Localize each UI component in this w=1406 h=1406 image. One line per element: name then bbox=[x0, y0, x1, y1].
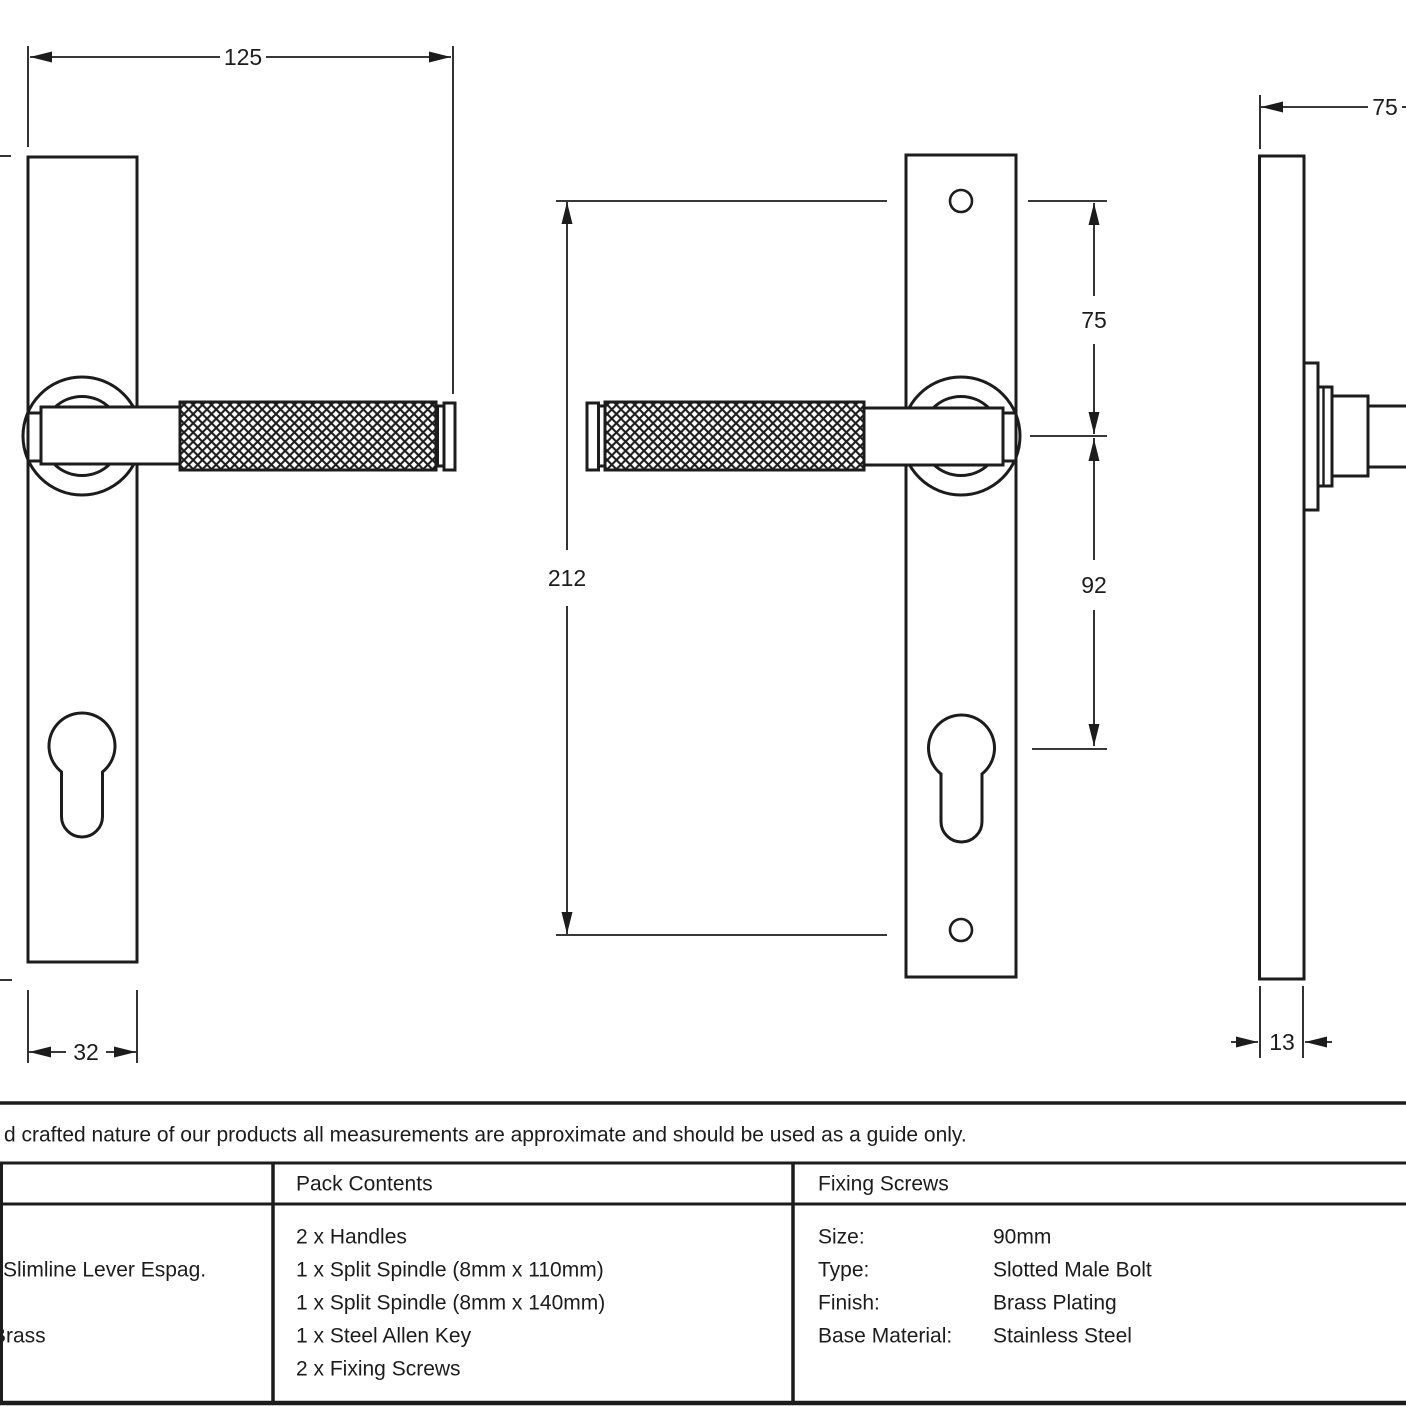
fixing-row-label: Type: bbox=[818, 1259, 869, 1282]
side-backplate bbox=[1260, 156, 1305, 979]
middle-backplate bbox=[906, 155, 1016, 977]
pack-contents-header: Pack Contents bbox=[296, 1173, 433, 1196]
dim-label-13: 13 bbox=[1269, 1029, 1295, 1055]
arrow-32-left bbox=[29, 1047, 51, 1058]
middle-top-screw-hole bbox=[950, 190, 972, 212]
arrow-125-right bbox=[429, 52, 451, 63]
technical-drawing-svg: 125 32 212 75 92 75 13 d crafted nature … bbox=[0, 0, 1406, 1406]
side-view bbox=[1260, 156, 1406, 979]
dim-label-125: 125 bbox=[224, 44, 262, 70]
middle-lever-neck bbox=[864, 408, 1003, 465]
front-view bbox=[23, 157, 455, 962]
dim-label-32: 32 bbox=[73, 1039, 99, 1065]
fixing-row-label: Base Material: bbox=[818, 1325, 952, 1348]
arrow-75-up bbox=[1089, 203, 1100, 225]
fixing-row-label: Size: bbox=[818, 1226, 865, 1249]
front-backplate bbox=[28, 157, 137, 962]
dimension-lines bbox=[0, 46, 1406, 1063]
arrow-125-left bbox=[30, 52, 52, 63]
pack-item: 1 x Split Spindle (8mm x 140mm) bbox=[296, 1292, 605, 1315]
middle-bottom-screw-hole bbox=[950, 919, 972, 941]
fixing-row-value: Stainless Steel bbox=[993, 1325, 1132, 1348]
front-lever-neck bbox=[41, 407, 180, 464]
arrow-13-inward-right bbox=[1305, 1037, 1327, 1048]
pack-item: 2 x Handles bbox=[296, 1226, 407, 1249]
front-lever-end-cap bbox=[444, 403, 455, 470]
arrow-75side-left bbox=[1261, 102, 1283, 113]
middle-view bbox=[587, 155, 1020, 977]
pack-item: 1 x Split Spindle (8mm x 110mm) bbox=[296, 1259, 604, 1282]
middle-spindle-block bbox=[1003, 413, 1016, 461]
side-collar bbox=[1318, 387, 1332, 486]
pack-item: 1 x Steel Allen Key bbox=[296, 1325, 472, 1348]
dimension-labels: 125 32 212 75 92 75 13 bbox=[73, 44, 1398, 1065]
side-rose-profile bbox=[1304, 363, 1318, 510]
dim-label-212: 212 bbox=[548, 565, 586, 591]
info-table: d crafted nature of our products all mea… bbox=[0, 1103, 1406, 1403]
product-finish-text: Brass bbox=[0, 1325, 46, 1348]
middle-lever-end-cap bbox=[587, 403, 599, 470]
disclaimer-text: d crafted nature of our products all mea… bbox=[4, 1124, 967, 1147]
fixing-row-value: Slotted Male Bolt bbox=[993, 1259, 1152, 1282]
arrow-212-down bbox=[562, 912, 573, 934]
pack-item: 2 x Fixing Screws bbox=[296, 1358, 461, 1381]
dim-label-92: 92 bbox=[1081, 572, 1107, 598]
arrow-32-right bbox=[114, 1047, 136, 1058]
fixing-row-value: Brass Plating bbox=[993, 1292, 1117, 1315]
fixing-screws-header: Fixing Screws bbox=[818, 1173, 949, 1196]
arrow-75-down bbox=[1089, 412, 1100, 434]
product-name-text: Slimline Lever Espag. bbox=[3, 1259, 206, 1282]
front-spindle-block bbox=[28, 413, 41, 461]
side-lever-hub bbox=[1332, 396, 1368, 476]
arrow-92-up bbox=[1089, 439, 1100, 461]
dim-label-75-top: 75 bbox=[1081, 307, 1107, 333]
middle-lever-knurled-grip bbox=[605, 402, 864, 470]
front-lever-knurled-grip bbox=[180, 402, 436, 470]
side-lever-arm bbox=[1368, 406, 1406, 467]
arrow-13-inward-left bbox=[1236, 1037, 1258, 1048]
fixing-row-value: 90mm bbox=[993, 1226, 1051, 1249]
arrow-212-up bbox=[562, 202, 573, 224]
arrow-92-down bbox=[1089, 724, 1100, 746]
dim-label-75-side: 75 bbox=[1372, 94, 1398, 120]
fixing-row-label: Finish: bbox=[818, 1292, 880, 1315]
dimension-arrows bbox=[29, 52, 1327, 1058]
drawing-page: 125 32 212 75 92 75 13 d crafted nature … bbox=[0, 0, 1406, 1406]
